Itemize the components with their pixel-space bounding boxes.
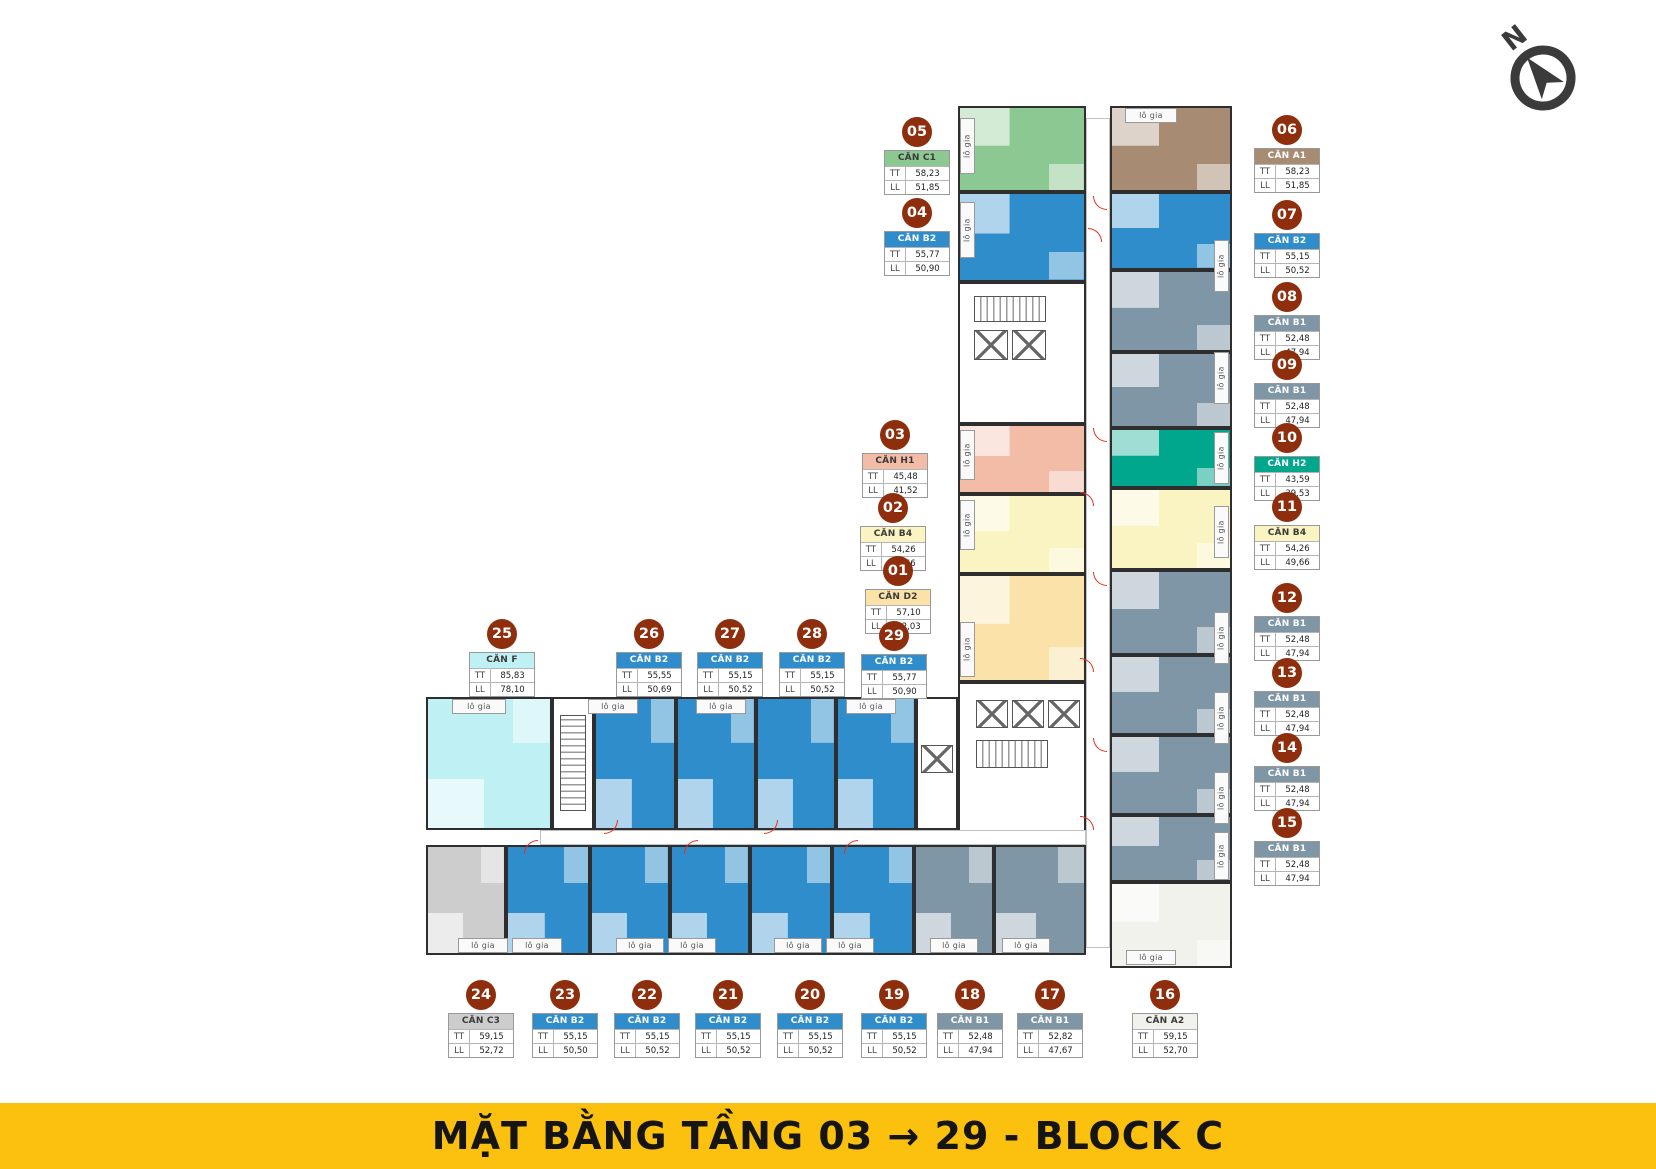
ll-row: LL50,52 (778, 1043, 842, 1057)
tt-label: TT (885, 248, 906, 261)
tt-row: TT54,26 (861, 542, 925, 556)
tt-value: 55,15 (883, 1030, 926, 1043)
ll-row: LL50,50 (533, 1043, 597, 1057)
ll-value: 50,90 (906, 262, 949, 275)
unit-number-badge: 06 (1272, 115, 1302, 145)
tt-value: 58,23 (1276, 165, 1319, 178)
tt-label: TT (1133, 1030, 1154, 1043)
ll-label: LL (1255, 179, 1276, 192)
tt-label: TT (696, 1030, 717, 1043)
unit-name: CĂN B1 (1018, 1014, 1082, 1029)
unit-card-11: 11CĂN B4TT54,26LL49,66 (1254, 492, 1320, 570)
ll-row: LL47,67 (1018, 1043, 1082, 1057)
tt-label: TT (1255, 250, 1276, 263)
tt-row: TT52,48 (1255, 331, 1319, 345)
unit-card-05: 05CĂN C1TT58,23LL51,85 (884, 117, 950, 195)
ll-row: LL50,69 (617, 682, 681, 696)
unit-card-03: 03CĂN H1TT45,48LL41,52 (862, 420, 928, 498)
tt-label: TT (1255, 633, 1276, 646)
balcony-label: lô gia (1214, 612, 1229, 664)
tt-label: TT (617, 669, 638, 682)
ll-row: LL47,94 (1255, 871, 1319, 885)
balcony-label: lô gia (960, 202, 975, 258)
ll-value: 50,52 (719, 683, 762, 696)
ll-row: LL50,52 (780, 682, 844, 696)
unit-card-24: 24CĂN C3TT59,15LL52,72 (448, 980, 514, 1058)
balcony-label: lô gia (1214, 692, 1229, 744)
unit-card-09: 09CĂN B1TT52,48LL47,94 (1254, 350, 1320, 428)
unit-number-badge: 04 (902, 198, 932, 228)
balcony-label: lô gia (960, 500, 975, 550)
tt-row: TT52,48 (1255, 782, 1319, 796)
unit-card-26: 26CĂN B2TT55,55LL50,69 (616, 619, 682, 697)
tt-row: TT85,83 (470, 668, 534, 682)
ll-label: LL (780, 683, 801, 696)
tt-label: TT (885, 167, 906, 180)
balcony-label: lô gia (826, 938, 874, 953)
unit-number-badge: 12 (1272, 583, 1302, 613)
unit-name: CĂN B2 (862, 1014, 926, 1029)
tt-value: 55,15 (717, 1030, 760, 1043)
unit-info-table: CĂN B2TT55,77LL50,90 (884, 231, 950, 276)
tt-row: TT55,15 (698, 668, 762, 682)
unit-number-badge: 13 (1272, 658, 1302, 688)
unit-number-badge: 11 (1272, 492, 1302, 522)
balcony-label: lô gia (774, 938, 822, 953)
balcony-label: lô gia (960, 430, 975, 480)
tt-value: 55,15 (719, 669, 762, 682)
unit-info-table: CĂN C1TT58,23LL51,85 (884, 150, 950, 195)
ll-label: LL (449, 1044, 470, 1057)
unit-name: CĂN B2 (780, 653, 844, 668)
tt-row: TT59,15 (1133, 1029, 1197, 1043)
tt-label: TT (1255, 473, 1276, 486)
balcony-label: lô gia (512, 938, 562, 953)
ll-row: LL50,90 (862, 684, 926, 698)
unit-card-21: 21CĂN B2TT55,15LL50,52 (695, 980, 761, 1058)
ll-row: LL50,52 (1255, 263, 1319, 277)
tt-row: TT52,48 (1255, 857, 1319, 871)
unit-card-08: 08CĂN B1TT52,48LL47,94 (1254, 282, 1320, 360)
tt-row: TT55,15 (696, 1029, 760, 1043)
tt-label: TT (1255, 332, 1276, 345)
unit-name: CĂN B4 (861, 527, 925, 542)
tt-value: 52,48 (1276, 633, 1319, 646)
ll-value: 47,94 (1276, 872, 1319, 885)
tt-value: 55,55 (638, 669, 681, 682)
ll-value: 50,52 (636, 1044, 679, 1057)
ll-label: LL (1255, 872, 1276, 885)
unit-number-badge: 18 (955, 980, 985, 1010)
tt-row: TT52,48 (938, 1029, 1002, 1043)
unit-info-table: CĂN B1TT52,48LL47,94 (937, 1013, 1003, 1058)
unit-name: CĂN D2 (866, 590, 930, 605)
tt-value: 55,15 (801, 669, 844, 682)
ll-value: 50,50 (554, 1044, 597, 1057)
balcony-label: lô gia (616, 938, 664, 953)
unit-card-28: 28CĂN B2TT55,15LL50,52 (779, 619, 845, 697)
tt-value: 54,26 (1276, 542, 1319, 555)
unit-card-14: 14CĂN B1TT52,48LL47,94 (1254, 733, 1320, 811)
balcony-label: lô gia (452, 699, 506, 714)
tt-row: TT55,15 (862, 1029, 926, 1043)
unit-info-table: CĂN B2TT55,15LL50,52 (777, 1013, 843, 1058)
ll-row: LL52,70 (1133, 1043, 1197, 1057)
unit-number-badge: 08 (1272, 282, 1302, 312)
tt-label: TT (449, 1030, 470, 1043)
ll-value: 78,10 (491, 683, 534, 696)
balcony-label: lô gia (668, 938, 716, 953)
tt-value: 52,48 (959, 1030, 1002, 1043)
ll-label: LL (617, 683, 638, 696)
unit-number-badge: 28 (797, 619, 827, 649)
tt-label: TT (1255, 165, 1276, 178)
unit-info-table: CĂN H1TT45,48LL41,52 (862, 453, 928, 498)
unit-name: CĂN B2 (617, 653, 681, 668)
tt-row: TT57,10 (866, 605, 930, 619)
plan-unit-25 (426, 697, 552, 830)
tt-label: TT (862, 1030, 883, 1043)
balcony-label: lô gia (1214, 432, 1229, 484)
unit-name: CĂN B2 (533, 1014, 597, 1029)
unit-number-badge: 29 (879, 621, 909, 651)
tt-row: TT55,77 (862, 670, 926, 684)
unit-info-table: CĂN A2TT59,15LL52,70 (1132, 1013, 1198, 1058)
unit-name: CĂN B2 (885, 232, 949, 247)
ll-row: LL50,52 (696, 1043, 760, 1057)
balcony-label: lô gia (1214, 772, 1229, 824)
unit-number-badge: 23 (550, 980, 580, 1010)
unit-info-table: CĂN A1TT58,23LL51,85 (1254, 148, 1320, 193)
unit-name: CĂN A2 (1133, 1014, 1197, 1029)
ll-label: LL (696, 1044, 717, 1057)
tt-row: TT52,48 (1255, 707, 1319, 721)
balcony-label: lô gia (1214, 352, 1229, 404)
tt-value: 55,15 (1276, 250, 1319, 263)
tt-row: TT59,15 (449, 1029, 513, 1043)
unit-number-badge: 05 (902, 117, 932, 147)
tt-row: TT55,15 (780, 668, 844, 682)
unit-info-table: CĂN B1TT52,48LL47,94 (1254, 841, 1320, 886)
tt-value: 52,48 (1276, 783, 1319, 796)
tt-label: TT (1255, 542, 1276, 555)
unit-name: CĂN H1 (863, 454, 927, 469)
unit-card-29: 29CĂN B2TT55,77LL50,90 (861, 621, 927, 699)
unit-name: CĂN B1 (1255, 316, 1319, 331)
tt-label: TT (866, 606, 887, 619)
unit-card-06: 06CĂN A1TT58,23LL51,85 (1254, 115, 1320, 193)
tt-row: TT54,26 (1255, 541, 1319, 555)
plan-unit-04 (958, 192, 1086, 282)
tt-value: 55,77 (883, 671, 926, 684)
ll-label: LL (1133, 1044, 1154, 1057)
unit-name: CĂN B2 (778, 1014, 842, 1029)
tt-label: TT (861, 543, 882, 556)
unit-info-table: CĂN FTT85,83LL78,10 (469, 652, 535, 697)
tt-value: 55,77 (906, 248, 949, 261)
unit-name: CĂN B1 (1255, 767, 1319, 782)
ll-value: 47,67 (1039, 1044, 1082, 1057)
unit-name: CĂN B2 (696, 1014, 760, 1029)
balcony-label: lô gia (846, 699, 896, 714)
tt-value: 45,48 (884, 470, 927, 483)
balcony-label: lô gia (1125, 108, 1177, 123)
ll-value: 49,66 (1276, 556, 1319, 569)
tt-value: 52,48 (1276, 858, 1319, 871)
ll-label: LL (533, 1044, 554, 1057)
ll-row: LL51,85 (885, 180, 949, 194)
unit-card-13: 13CĂN B1TT52,48LL47,94 (1254, 658, 1320, 736)
tt-label: TT (938, 1030, 959, 1043)
unit-name: CĂN F (470, 653, 534, 668)
tt-value: 52,48 (1276, 332, 1319, 345)
balcony-label: lô gia (1214, 832, 1229, 880)
unit-name: CĂN B2 (1255, 234, 1319, 249)
ll-row: LL78,10 (470, 682, 534, 696)
tt-value: 52,82 (1039, 1030, 1082, 1043)
unit-number-badge: 26 (634, 619, 664, 649)
tt-label: TT (1255, 708, 1276, 721)
tt-row: TT55,15 (778, 1029, 842, 1043)
ll-value: 50,52 (801, 683, 844, 696)
tt-value: 55,15 (799, 1030, 842, 1043)
ll-row: LL52,72 (449, 1043, 513, 1057)
unit-card-25: 25CĂN FTT85,83LL78,10 (469, 619, 535, 697)
unit-card-07: 07CĂN B2TT55,15LL50,52 (1254, 200, 1320, 278)
elevator (1048, 700, 1080, 728)
unit-info-table: CĂN B2TT55,15LL50,52 (614, 1013, 680, 1058)
tt-value: 55,15 (636, 1030, 679, 1043)
staircase (560, 715, 586, 811)
tt-value: 59,15 (1154, 1030, 1197, 1043)
unit-name: CĂN C3 (449, 1014, 513, 1029)
ll-label: LL (1018, 1044, 1039, 1057)
unit-name: CĂN B2 (615, 1014, 679, 1029)
unit-card-17: 17CĂN B1TT52,82LL47,67 (1017, 980, 1083, 1058)
tt-row: TT55,15 (615, 1029, 679, 1043)
tt-value: 59,15 (470, 1030, 513, 1043)
floor-plan-title-banner: MẶT BẰNG TẦNG 03 → 29 - BLOCK C (0, 1103, 1656, 1169)
tt-row: TT45,48 (863, 469, 927, 483)
unit-card-27: 27CĂN B2TT55,15LL50,52 (697, 619, 763, 697)
unit-number-badge: 19 (879, 980, 909, 1010)
tt-row: TT55,77 (885, 247, 949, 261)
ll-value: 50,52 (799, 1044, 842, 1057)
tt-label: TT (863, 470, 884, 483)
ll-label: LL (885, 262, 906, 275)
unit-name: CĂN B1 (1255, 384, 1319, 399)
balcony-label: lô gia (930, 938, 978, 953)
staircase (976, 740, 1048, 768)
unit-card-16: 16CĂN A2TT59,15LL52,70 (1132, 980, 1198, 1058)
plan-unit-29 (836, 697, 916, 830)
unit-number-badge: 09 (1272, 350, 1302, 380)
tt-row: TT52,48 (1255, 399, 1319, 413)
ll-value: 52,70 (1154, 1044, 1197, 1057)
unit-number-badge: 10 (1272, 423, 1302, 453)
balcony-label: lô gia (1002, 938, 1050, 953)
unit-info-table: CĂN B1TT52,82LL47,67 (1017, 1013, 1083, 1058)
unit-info-table: CĂN B2TT55,55LL50,69 (616, 652, 682, 697)
unit-name: CĂN H2 (1255, 457, 1319, 472)
corridor-horizontal (540, 830, 1086, 845)
unit-number-badge: 25 (487, 619, 517, 649)
tt-label: TT (862, 671, 883, 684)
unit-number-badge: 21 (713, 980, 743, 1010)
unit-name: CĂN B4 (1255, 526, 1319, 541)
elevator (921, 745, 953, 773)
unit-info-table: CĂN B1TT52,48LL47,94 (1254, 383, 1320, 428)
plan-unit-27 (676, 697, 756, 830)
elevator (974, 330, 1008, 360)
plan-unit-28 (756, 697, 836, 830)
ll-value: 51,85 (906, 181, 949, 194)
unit-number-badge: 14 (1272, 733, 1302, 763)
unit-name: CĂN B2 (698, 653, 762, 668)
tt-value: 85,83 (491, 669, 534, 682)
unit-info-table: CĂN B2TT55,15LL50,52 (695, 1013, 761, 1058)
unit-card-19: 19CĂN B2TT55,15LL50,52 (861, 980, 927, 1058)
unit-info-table: CĂN B4TT54,26LL49,66 (1254, 525, 1320, 570)
tt-row: TT55,55 (617, 668, 681, 682)
ll-label: LL (1255, 264, 1276, 277)
tt-value: 52,48 (1276, 400, 1319, 413)
ll-label: LL (778, 1044, 799, 1057)
balcony-label: lô gia (588, 699, 638, 714)
tt-value: 55,15 (554, 1030, 597, 1043)
unit-number-badge: 17 (1035, 980, 1065, 1010)
tt-value: 57,10 (887, 606, 930, 619)
ll-row: LL50,90 (885, 261, 949, 275)
ll-value: 50,52 (717, 1044, 760, 1057)
unit-name: CĂN B1 (938, 1014, 1002, 1029)
ll-row: LL50,52 (862, 1043, 926, 1057)
north-compass-icon: N (1478, 6, 1608, 136)
unit-number-badge: 24 (466, 980, 496, 1010)
tt-label: TT (470, 669, 491, 682)
tt-label: TT (1018, 1030, 1039, 1043)
ll-row: LL47,94 (938, 1043, 1002, 1057)
door-swing-icon (524, 840, 538, 854)
balcony-label: lô gia (696, 699, 746, 714)
ll-value: 50,52 (1276, 264, 1319, 277)
unit-info-table: CĂN B2TT55,15LL50,50 (532, 1013, 598, 1058)
ll-value: 51,85 (1276, 179, 1319, 192)
plan-unit-03 (958, 424, 1086, 494)
ll-value: 50,90 (883, 685, 926, 698)
unit-name: CĂN B1 (1255, 692, 1319, 707)
ll-value: 47,94 (959, 1044, 1002, 1057)
elevator (976, 700, 1008, 728)
ll-label: LL (862, 685, 883, 698)
ll-label: LL (862, 1044, 883, 1057)
tt-label: TT (698, 669, 719, 682)
unit-number-badge: 22 (632, 980, 662, 1010)
tt-label: TT (780, 669, 801, 682)
tt-label: TT (533, 1030, 554, 1043)
ll-label: LL (698, 683, 719, 696)
unit-number-badge: 07 (1272, 200, 1302, 230)
ll-row: LL49,66 (1255, 555, 1319, 569)
unit-info-table: CĂN B2TT55,15LL50,52 (861, 1013, 927, 1058)
balcony-label: lô gia (1214, 240, 1229, 292)
balcony-label: lô gia (960, 118, 975, 174)
unit-card-23: 23CĂN B2TT55,15LL50,50 (532, 980, 598, 1058)
unit-info-table: CĂN B2TT55,77LL50,90 (861, 654, 927, 699)
unit-info-table: CĂN C3TT59,15LL52,72 (448, 1013, 514, 1058)
elevator (1012, 700, 1044, 728)
unit-number-badge: 16 (1150, 980, 1180, 1010)
unit-card-20: 20CĂN B2TT55,15LL50,52 (777, 980, 843, 1058)
unit-card-10: 10CĂN H2TT43,59LL39,53 (1254, 423, 1320, 501)
ll-value: 50,52 (883, 1044, 926, 1057)
balcony-label: lô gia (458, 938, 508, 953)
plan-unit-01 (958, 574, 1086, 682)
unit-info-table: CĂN B2TT55,15LL50,52 (779, 652, 845, 697)
unit-number-badge: 15 (1272, 808, 1302, 838)
unit-info-table: CĂN B1TT52,48LL47,94 (1254, 616, 1320, 661)
unit-card-04: 04CĂN B2TT55,77LL50,90 (884, 198, 950, 276)
unit-name: CĂN B1 (1255, 617, 1319, 632)
ll-row: LL50,52 (615, 1043, 679, 1057)
tt-row: TT58,23 (1255, 164, 1319, 178)
unit-number-badge: 02 (878, 493, 908, 523)
unit-name: CĂN B2 (862, 655, 926, 670)
floor-plan-title: MẶT BẰNG TẦNG 03 → 29 - BLOCK C (432, 1114, 1224, 1158)
unit-name: CĂN B1 (1255, 842, 1319, 857)
unit-info-table: CĂN B2TT55,15LL50,52 (697, 652, 763, 697)
ll-label: LL (1255, 556, 1276, 569)
unit-number-badge: 03 (880, 420, 910, 450)
plan-unit-02 (958, 494, 1086, 574)
staircase (974, 296, 1046, 322)
unit-number-badge: 20 (795, 980, 825, 1010)
unit-info-table: CĂN B2TT55,15LL50,52 (1254, 233, 1320, 278)
tt-label: TT (615, 1030, 636, 1043)
balcony-label: lô gia (960, 622, 975, 677)
ll-value: 50,69 (638, 683, 681, 696)
ll-row: LL50,52 (698, 682, 762, 696)
tt-value: 58,23 (906, 167, 949, 180)
unit-number-badge: 27 (715, 619, 745, 649)
tt-row: TT55,15 (533, 1029, 597, 1043)
unit-card-22: 22CĂN B2TT55,15LL50,52 (614, 980, 680, 1058)
ll-label: LL (885, 181, 906, 194)
tt-row: TT52,82 (1018, 1029, 1082, 1043)
unit-name: CĂN A1 (1255, 149, 1319, 164)
unit-info-table: CĂN B1TT52,48LL47,94 (1254, 691, 1320, 736)
unit-name: CĂN C1 (885, 151, 949, 166)
unit-card-18: 18CĂN B1TT52,48LL47,94 (937, 980, 1003, 1058)
unit-number-badge: 01 (883, 556, 913, 586)
ll-label: LL (938, 1044, 959, 1057)
tt-value: 54,26 (882, 543, 925, 556)
tt-row: TT55,15 (1255, 249, 1319, 263)
unit-card-12: 12CĂN B1TT52,48LL47,94 (1254, 583, 1320, 661)
tt-value: 52,48 (1276, 708, 1319, 721)
plan-unit-26 (594, 697, 676, 830)
plan-unit-05 (958, 106, 1086, 192)
balcony-label: lô gia (1214, 506, 1229, 558)
balcony-label: lô gia (1126, 950, 1176, 965)
tt-row: TT58,23 (885, 166, 949, 180)
tt-label: TT (1255, 400, 1276, 413)
tt-value: 43,59 (1276, 473, 1319, 486)
ll-label: LL (470, 683, 491, 696)
ll-row: LL51,85 (1255, 178, 1319, 192)
elevator (1012, 330, 1046, 360)
tt-label: TT (778, 1030, 799, 1043)
